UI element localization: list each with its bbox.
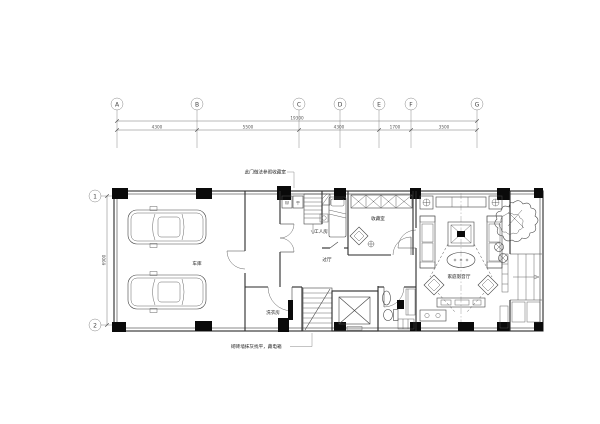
- grid-label-2: 2: [93, 322, 97, 329]
- grid-bubble-E: E: [373, 98, 385, 110]
- room-label-worker: 工人房: [314, 228, 328, 235]
- grid-label-D: D: [338, 101, 343, 108]
- bed-icon: [329, 197, 346, 237]
- floor-plan-drawing: A B C D E F G 19300: [0, 0, 600, 424]
- grid-bubble-C: C: [293, 98, 305, 110]
- diamond-table-icon: [350, 227, 374, 247]
- courtyard: [495, 191, 543, 331]
- diamond-table-icon: [478, 275, 498, 295]
- plant-pot-icon: [495, 243, 508, 263]
- dim-seg-1: 4300: [152, 125, 163, 130]
- wardrobe-icon: [351, 195, 412, 208]
- dryer-icon: 干: [293, 196, 303, 208]
- door-note-text: 此门做法参照收藏室: [245, 169, 287, 176]
- grid-bubble-F: F: [405, 98, 417, 110]
- grid-bubble-B: B: [191, 98, 203, 110]
- annotation-wall-note: 砌砖墙抹灰找平，藏电箱: [231, 333, 312, 350]
- collection-room-door: [393, 237, 411, 255]
- cabinet-icon: [420, 310, 446, 321]
- room-av: 家庭影音厅: [398, 191, 508, 331]
- paving: [512, 302, 540, 322]
- grid-bubble-G: G: [471, 98, 483, 110]
- grid-label-B: B: [195, 101, 199, 108]
- grid-bubble-1: 1: [89, 190, 101, 202]
- stair-zone: W 干: [280, 191, 322, 287]
- dim-seg-2: 5500: [243, 125, 254, 130]
- grid-system-left: 1 2 6900: [89, 190, 114, 331]
- dim-overall-text: 19300: [290, 116, 304, 121]
- grid-label-1: 1: [93, 193, 97, 200]
- car-icon: [128, 207, 206, 248]
- sofa-left-icon: [420, 216, 435, 268]
- end-table-icon: [420, 196, 433, 209]
- grid-label-A: A: [115, 101, 120, 108]
- room-garage: 车库: [128, 191, 245, 331]
- grid-system-top: A B C D E F G 19300: [111, 98, 483, 148]
- diamond-table-icon: [424, 275, 444, 295]
- grid-bubble-A: A: [111, 98, 123, 110]
- room-label-laundry: 洗衣房: [266, 309, 280, 316]
- grid-label-F: F: [409, 101, 413, 108]
- room-label-collection: 收藏室: [371, 215, 385, 222]
- grid-bubble-D: D: [334, 98, 346, 110]
- grid-label-E: E: [377, 101, 381, 108]
- wall-note-text: 砌砖墙抹灰找平，藏电箱: [231, 343, 282, 350]
- grid-label-C: C: [297, 101, 301, 108]
- room-worker: 工人房: [314, 191, 348, 255]
- room-label-av: 家庭影音厅: [448, 273, 471, 280]
- grid-label-G: G: [475, 101, 480, 108]
- room-laundry: 洗衣房: [245, 287, 302, 331]
- washer-label: W: [285, 200, 289, 205]
- room-label-garage: 车库: [192, 260, 202, 267]
- entry-steps: [510, 254, 542, 300]
- dim-seg-3: 4300: [334, 125, 345, 130]
- dim-left-text: 6900: [102, 254, 107, 265]
- toilet-icon: [384, 310, 399, 321]
- dryer-label: 干: [296, 200, 300, 206]
- dim-seg-4: 1700: [390, 125, 401, 130]
- garage-door: [227, 251, 245, 269]
- room-label-hallway: 过厅: [322, 256, 332, 263]
- dimension-segments: 4300 5500 4300 1700 3500: [115, 125, 479, 132]
- tree-icon: [495, 201, 538, 242]
- room-collection: 收藏室: [348, 191, 413, 255]
- dimension-left-height: 6900: [102, 194, 109, 327]
- annotation-door-note: 此门做法参照收藏室: [245, 169, 294, 189]
- staircase-upper: [304, 194, 322, 234]
- room-hallway: 过厅: [322, 256, 332, 263]
- car-icon: [128, 272, 206, 313]
- vanity-counter: [406, 289, 415, 315]
- staircase-lower: [303, 288, 332, 331]
- grid-bubble-2: 2: [89, 319, 101, 331]
- floor-plan-canvas: A B C D E F G 19300: [0, 0, 600, 424]
- dimension-overall: 19300: [115, 116, 479, 123]
- double-door: [280, 224, 294, 252]
- dim-seg-5: 3500: [439, 125, 450, 130]
